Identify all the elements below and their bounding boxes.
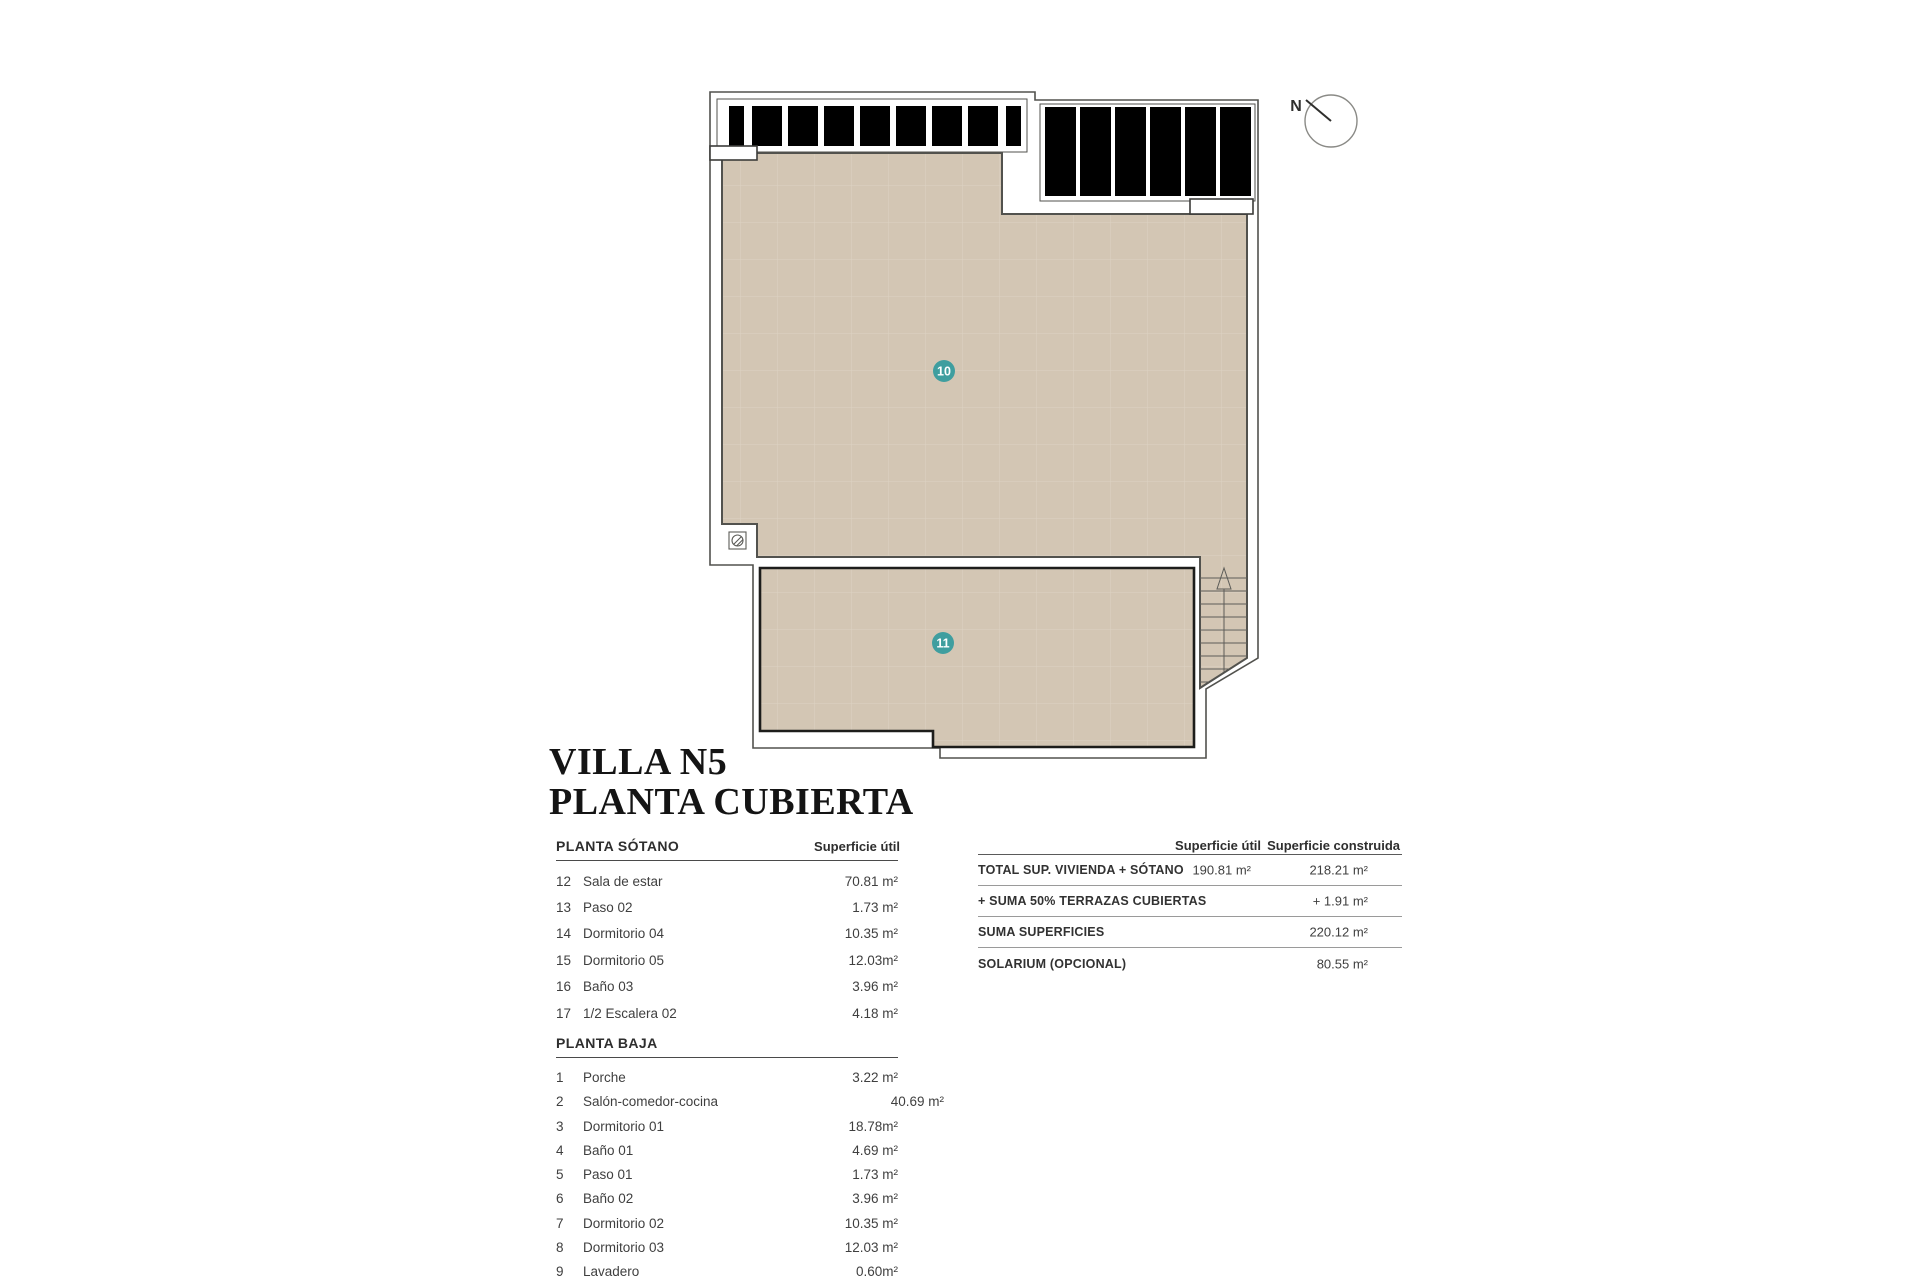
page-title: VILLA N5 PLANTA CUBIERTA (549, 742, 914, 822)
sheet: 10 11 N VILLA N5 PLANTA CUBIERTA PLANTA … (0, 0, 1920, 1280)
baja-rows: 1Porche3.22 m² 2Salón-comedor-cocina40.6… (556, 1065, 898, 1280)
section-title: PLANTA SÓTANO (556, 838, 679, 854)
drain-icon (729, 532, 746, 549)
table-row: TOTAL SUP. VIVIENDA + SÓTANO 190.81 m² 2… (978, 855, 1402, 886)
table-row: 9Lavadero0.60m² (556, 1260, 898, 1280)
table-row: 5Paso 011.73 m² (556, 1163, 898, 1187)
north-arrow-icon: N (1290, 95, 1357, 147)
table-row: 3Dormitorio 0118.78m² (556, 1114, 898, 1138)
table-row: 7Dormitorio 0210.35 m² (556, 1211, 898, 1235)
table-row: 15Dormitorio 0512.03m² (556, 947, 898, 973)
svg-text:N: N (1290, 98, 1302, 115)
surface-summary-table: Superficie útil Superficie construida TO… (978, 838, 1402, 979)
summary-header: Superficie útil Superficie construida (978, 838, 1402, 855)
column-header-util: Superficie útil (1175, 838, 1261, 853)
table-row: 8Dormitorio 0312.03 m² (556, 1235, 898, 1259)
table-row: 13Paso 021.73 m² (556, 894, 898, 920)
table-row: SUMA SUPERFICIES 220.12 m² (978, 917, 1402, 948)
table-row: 2Salón-comedor-cocina40.69 m² (556, 1090, 898, 1114)
floor-plan-drawing: 10 11 N (0, 0, 1920, 1280)
area-label-10: 10 (933, 360, 955, 382)
table-row: SOLARIUM (OPCIONAL) 80.55 m² (978, 948, 1402, 979)
table-row: 12Sala de estar70.81 m² (556, 868, 898, 894)
wall-tab-top-right (1190, 199, 1253, 214)
baja-header: PLANTA BAJA (556, 1035, 898, 1058)
svg-text:10: 10 (937, 365, 951, 379)
terrace-area-11 (760, 568, 1194, 747)
svg-text:11: 11 (936, 637, 949, 651)
wall-tab-top-left (710, 146, 757, 160)
room-schedule-table: PLANTA SÓTANO Superficie útil 12Sala de … (556, 838, 898, 1280)
table-row: 1Porche3.22 m² (556, 1065, 898, 1089)
title-line-1: VILLA N5 (549, 742, 914, 782)
title-line-2: PLANTA CUBIERTA (549, 782, 914, 822)
area-label-11: 11 (932, 632, 954, 654)
sotano-header: PLANTA SÓTANO Superficie útil (556, 838, 898, 861)
table-row: 16Baño 033.96 m² (556, 974, 898, 1000)
column-header: Superficie útil (814, 839, 900, 854)
table-row: 171/2 Escalera 024.18 m² (556, 1000, 898, 1026)
column-header-construida: Superficie construida (1267, 838, 1400, 853)
sotano-rows: 12Sala de estar70.81 m² 13Paso 021.73 m²… (556, 868, 898, 1026)
section-title: PLANTA BAJA (556, 1035, 658, 1051)
pergola-beams-left (729, 106, 1021, 146)
table-row: 6Baño 023.96 m² (556, 1187, 898, 1211)
table-row: 14Dormitorio 0410.35 m² (556, 921, 898, 947)
table-row: + SUMA 50% TERRAZAS CUBIERTAS + 1.91 m² (978, 886, 1402, 917)
table-row: 4Baño 014.69 m² (556, 1138, 898, 1162)
